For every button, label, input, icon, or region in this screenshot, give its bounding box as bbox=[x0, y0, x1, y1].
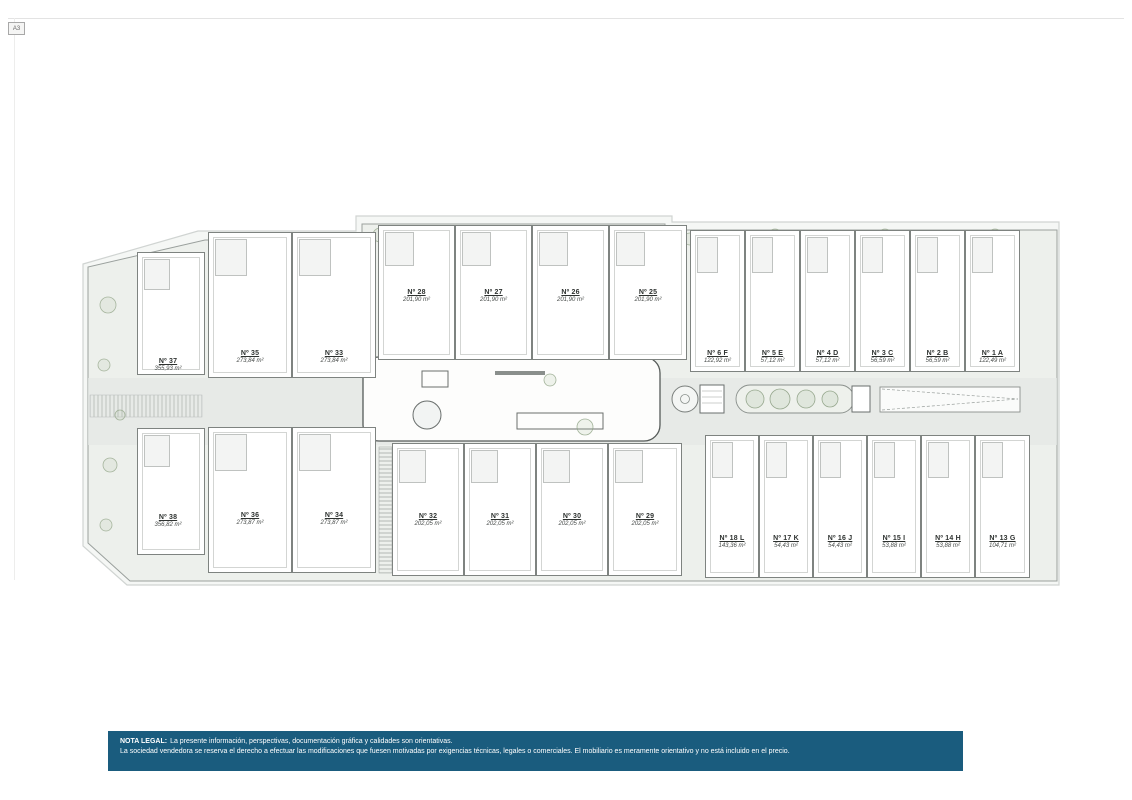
pergola-band bbox=[90, 395, 202, 417]
legal-note-bar: NOTA LEGAL:La presente información, pers… bbox=[108, 731, 963, 771]
unit-28: Nº 28 201,90 m² bbox=[378, 225, 455, 360]
unit-number: Nº 17 K bbox=[760, 534, 812, 543]
unit-37: Nº 37 355,93 m² bbox=[137, 252, 205, 375]
unit-area: 202,05 m² bbox=[465, 521, 535, 529]
unit-number: Nº 36 bbox=[209, 511, 291, 520]
unit-number: Nº 30 bbox=[537, 512, 607, 521]
communal-courtyard bbox=[363, 357, 660, 441]
unit-number: Nº 3 C bbox=[856, 349, 909, 358]
unit-area: 273,87 m² bbox=[209, 520, 291, 528]
unit-number: Nº 5 E bbox=[746, 349, 799, 358]
unit-area: 122,49 m² bbox=[966, 358, 1019, 366]
unit-27: Nº 27 201,90 m² bbox=[455, 225, 532, 360]
unit-area: 201,90 m² bbox=[379, 297, 454, 305]
unit-number: Nº 28 bbox=[379, 288, 454, 297]
unit-area: 143,36 m² bbox=[706, 543, 758, 551]
unit-number: Nº 26 bbox=[533, 288, 608, 297]
unit-area: 57,12 m² bbox=[801, 358, 854, 366]
unit-area: 54,43 m² bbox=[760, 543, 812, 551]
legal-note-label: NOTA LEGAL: bbox=[120, 738, 167, 745]
unit-number: Nº 25 bbox=[610, 288, 686, 297]
sheet-frame-line bbox=[8, 18, 1124, 19]
unit-number: Nº 13 G bbox=[976, 534, 1029, 543]
unit-area: 202,05 m² bbox=[393, 521, 463, 529]
sheet-frame-line bbox=[14, 18, 15, 580]
unit-area: 201,90 m² bbox=[533, 297, 608, 305]
unit-30: Nº 30 202,05 m² bbox=[536, 443, 608, 576]
unit-33: Nº 33 273,84 m² bbox=[292, 232, 376, 378]
unit-number: Nº 32 bbox=[393, 512, 463, 521]
unit-area: 201,90 m² bbox=[456, 297, 531, 305]
unit-area: 201,90 m² bbox=[610, 297, 686, 305]
unit-6f: Nº 6 F 122,92 m² bbox=[690, 230, 745, 372]
unit-number: Nº 37 bbox=[128, 357, 208, 366]
unit-area: 122,92 m² bbox=[691, 358, 744, 366]
unit-number: Nº 6 F bbox=[691, 349, 744, 358]
unit-area: 57,12 m² bbox=[746, 358, 799, 366]
unit-number: Nº 31 bbox=[465, 512, 535, 521]
unit-number: Nº 35 bbox=[209, 349, 291, 358]
unit-number: Nº 29 bbox=[609, 512, 681, 521]
unit-3c: Nº 3 C 56,59 m² bbox=[855, 230, 910, 372]
unit-area: 356,82 m² bbox=[128, 522, 208, 530]
unit-5e: Nº 5 E 57,12 m² bbox=[745, 230, 800, 372]
unit-area: 355,93 m² bbox=[128, 366, 208, 374]
unit-area: 53,88 m² bbox=[922, 543, 974, 551]
utility-block bbox=[700, 385, 724, 413]
unit-35: Nº 35 273,84 m² bbox=[208, 232, 292, 378]
legal-note-line-2: La sociedad vendedora se reserva el dere… bbox=[120, 747, 963, 757]
drawing-sheet: A3 bbox=[0, 0, 1132, 800]
unit-38: Nº 38 356,82 m² bbox=[137, 428, 205, 555]
unit-16j: Nº 16 J 54,43 m² bbox=[813, 435, 867, 578]
unit-area: 202,05 m² bbox=[609, 521, 681, 529]
site-plan: Nº 37 355,93 m² Nº 38 356,82 m² Nº 35 27… bbox=[80, 215, 1060, 590]
roundabout-icon bbox=[672, 386, 698, 412]
unit-number: Nº 2 B bbox=[911, 349, 964, 358]
unit-number: Nº 16 J bbox=[814, 534, 866, 543]
unit-17k: Nº 17 K 54,43 m² bbox=[759, 435, 813, 578]
unit-18l: Nº 18 L 143,36 m² bbox=[705, 435, 759, 578]
unit-area: 104,71 m² bbox=[976, 543, 1029, 551]
unit-32: Nº 32 202,05 m² bbox=[392, 443, 464, 576]
legal-note-text-1: La presente información, perspectivas, d… bbox=[170, 738, 453, 745]
unit-4d: Nº 4 D 57,12 m² bbox=[800, 230, 855, 372]
unit-area: 56,59 m² bbox=[911, 358, 964, 366]
sheet-corner-label: A3 bbox=[8, 22, 25, 35]
parking-ramp bbox=[880, 387, 1020, 412]
unit-area: 273,84 m² bbox=[293, 358, 375, 366]
unit-14h: Nº 14 H 53,88 m² bbox=[921, 435, 975, 578]
unit-area: 53,88 m² bbox=[868, 543, 920, 551]
unit-34: Nº 34 273,87 m² bbox=[292, 427, 376, 573]
unit-number: Nº 4 D bbox=[801, 349, 854, 358]
unit-number: Nº 27 bbox=[456, 288, 531, 297]
legal-note-line-1: NOTA LEGAL:La presente información, pers… bbox=[120, 737, 963, 747]
unit-number: Nº 15 I bbox=[868, 534, 920, 543]
unit-13g: Nº 13 G 104,71 m² bbox=[975, 435, 1030, 578]
landscaped-island bbox=[736, 385, 854, 413]
unit-area: 56,59 m² bbox=[856, 358, 909, 366]
unit-26: Nº 26 201,90 m² bbox=[532, 225, 609, 360]
utility-block bbox=[852, 386, 870, 412]
unit-1a: Nº 1 A 122,49 m² bbox=[965, 230, 1020, 372]
unit-area: 273,87 m² bbox=[293, 520, 375, 528]
unit-number: Nº 1 A bbox=[966, 349, 1019, 358]
unit-29: Nº 29 202,05 m² bbox=[608, 443, 682, 576]
unit-number: Nº 38 bbox=[128, 513, 208, 522]
unit-2b: Nº 2 B 56,59 m² bbox=[910, 230, 965, 372]
unit-31: Nº 31 202,05 m² bbox=[464, 443, 536, 576]
unit-number: Nº 14 H bbox=[922, 534, 974, 543]
unit-area: 273,84 m² bbox=[209, 358, 291, 366]
unit-36: Nº 36 273,87 m² bbox=[208, 427, 292, 573]
unit-15i: Nº 15 I 53,88 m² bbox=[867, 435, 921, 578]
unit-number: Nº 33 bbox=[293, 349, 375, 358]
unit-number: Nº 18 L bbox=[706, 534, 758, 543]
unit-25: Nº 25 201,90 m² bbox=[609, 225, 687, 360]
unit-number: Nº 34 bbox=[293, 511, 375, 520]
unit-area: 202,05 m² bbox=[537, 521, 607, 529]
unit-area: 54,43 m² bbox=[814, 543, 866, 551]
pool-icon bbox=[413, 401, 441, 429]
